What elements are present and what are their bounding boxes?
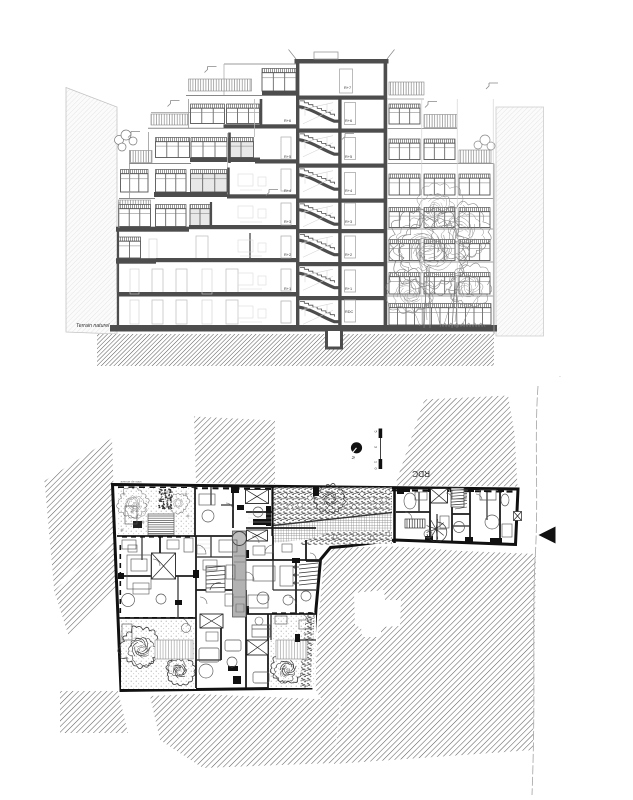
svg-text:avenue de sous: avenue de sous <box>121 480 143 484</box>
svg-text:R+4: R+4 <box>284 189 291 193</box>
svg-text:R+5: R+5 <box>284 155 291 159</box>
svg-text:1: 1 <box>374 461 378 463</box>
svg-text:RDC: RDC <box>345 310 353 314</box>
svg-text:5: 5 <box>374 431 378 433</box>
svg-text:r: r <box>558 376 562 377</box>
svg-text:N: N <box>351 456 356 460</box>
svg-text:R+5: R+5 <box>345 155 352 159</box>
svg-text:R+2: R+2 <box>284 253 291 257</box>
svg-text:R+2: R+2 <box>345 253 352 257</box>
svg-text:R+1: R+1 <box>284 287 291 291</box>
svg-text:Terrain naturel: Terrain naturel <box>76 323 110 329</box>
svg-text:RDC: RDC <box>412 469 430 478</box>
svg-text:R+1: R+1 <box>345 287 352 291</box>
svg-text:R+3: R+3 <box>345 220 352 224</box>
svg-text:R+3: R+3 <box>284 220 291 224</box>
svg-text:0: 0 <box>374 468 378 470</box>
svg-text:R+6: R+6 <box>345 119 352 123</box>
svg-text:R+4: R+4 <box>345 189 352 193</box>
svg-text:3: 3 <box>374 446 378 448</box>
svg-text:R+7: R+7 <box>344 86 351 90</box>
svg-text:R+6: R+6 <box>284 119 291 123</box>
